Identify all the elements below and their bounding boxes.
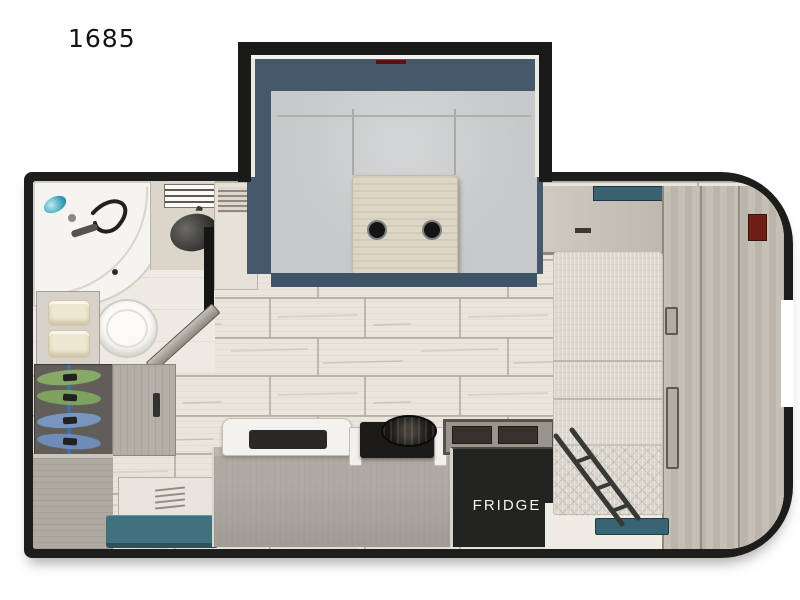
dinette-table (352, 175, 458, 279)
front-cap-window (781, 300, 794, 407)
fridge-label: FRIDGE (473, 497, 542, 514)
slideout-wall (238, 42, 251, 182)
cooktop (360, 422, 434, 458)
wood-seam (738, 186, 740, 549)
red-vent-panel (748, 214, 767, 241)
step-vent-slat (155, 504, 185, 509)
slideout-trim (244, 55, 546, 59)
floorplan-canvas: 1685 (0, 0, 800, 600)
model-number-label: 1685 (68, 24, 136, 53)
dinette-cushions (271, 91, 537, 273)
hanging-wardrobe (34, 364, 114, 456)
shower-knob (68, 214, 76, 222)
green-hanger-icon (37, 388, 102, 406)
green-hanger-icon (37, 368, 102, 387)
slideout-trim (251, 59, 255, 177)
sink-basin-cover (249, 430, 327, 449)
cabinet-handle (153, 393, 160, 417)
blue-hanger-icon (37, 411, 102, 429)
toilet (96, 299, 158, 358)
burner-grate-icon (381, 415, 437, 447)
entry-step-mat (106, 515, 218, 548)
cushion-seam (352, 109, 354, 175)
cabinet-handle (575, 228, 591, 233)
kitchen-sink (222, 418, 352, 456)
wood-seam (700, 186, 702, 549)
cup-holder-icon (422, 220, 442, 240)
towel-stack (48, 330, 90, 358)
wardrobe-side-cabinet (112, 364, 176, 456)
bunk-ladder-icon (538, 423, 688, 533)
kitchen-counter (212, 447, 458, 547)
step-vent-slat (155, 498, 185, 503)
counter-inset (452, 426, 492, 444)
slideout-trim (535, 59, 539, 177)
counter-inset (498, 426, 538, 444)
step-vent-slat (155, 492, 185, 497)
bathroom-window-blinds (164, 184, 215, 208)
step-vent-slat (155, 486, 185, 491)
cup-holder-icon (367, 220, 387, 240)
entry-step (118, 477, 224, 519)
slideout-marker (376, 60, 406, 64)
mattress-seam (554, 398, 662, 400)
slideout-wall (238, 42, 552, 55)
shower (33, 181, 168, 307)
towel-stack (48, 300, 90, 326)
shower-drain (112, 269, 118, 275)
blue-hanger-icon (37, 432, 102, 451)
dinette-slideout (238, 42, 552, 274)
slideout-wall (539, 42, 552, 182)
dinette-seat-front (271, 273, 537, 287)
cushion-seam (277, 115, 531, 117)
linen-shelf (36, 291, 100, 366)
cushion-seam (454, 109, 456, 175)
grab-handle (665, 307, 678, 335)
lower-cabinet (33, 454, 113, 549)
mattress-seam (554, 360, 662, 362)
